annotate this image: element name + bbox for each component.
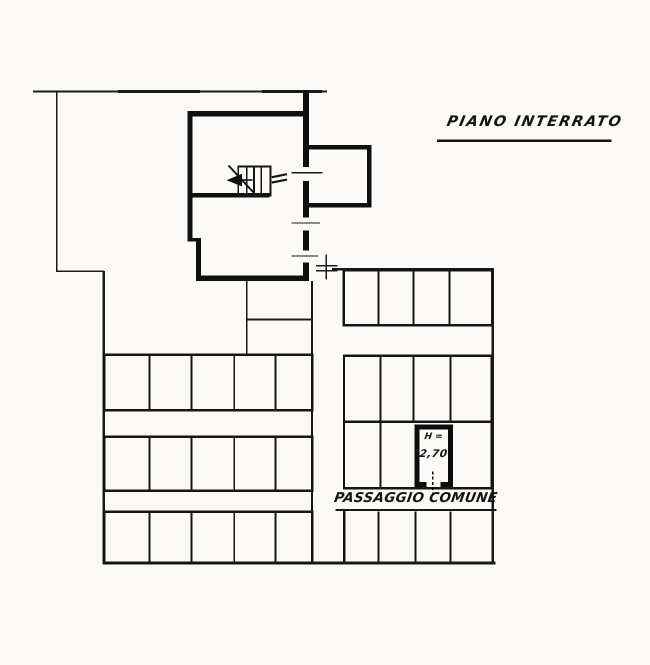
room-height-value: 2,70 — [413, 448, 454, 460]
partition-walls — [246, 281, 313, 563]
storage-row — [104, 355, 312, 411]
storage-grid-right — [335, 270, 496, 562]
storage-row — [344, 270, 492, 325]
door-openings — [292, 173, 338, 280]
storage-row — [104, 512, 312, 563]
level-mark — [272, 180, 287, 183]
annex-room — [304, 145, 370, 207]
floor-plan-canvas: PIANO INTERRATO PASSAGGIO COMUNE H = 2,7… — [0, 0, 650, 665]
stair-direction-arrow — [227, 174, 243, 187]
room-height-label: H = — [415, 432, 451, 442]
floor-title: PIANO INTERRATO — [444, 114, 621, 136]
storage-grid-left — [104, 355, 312, 563]
staircase — [227, 166, 288, 196]
passage-label: PASSAGGIO COMUNE — [333, 490, 499, 506]
storage-row — [104, 437, 312, 491]
floor-plan-drawing — [0, 0, 650, 665]
level-mark — [272, 174, 287, 177]
